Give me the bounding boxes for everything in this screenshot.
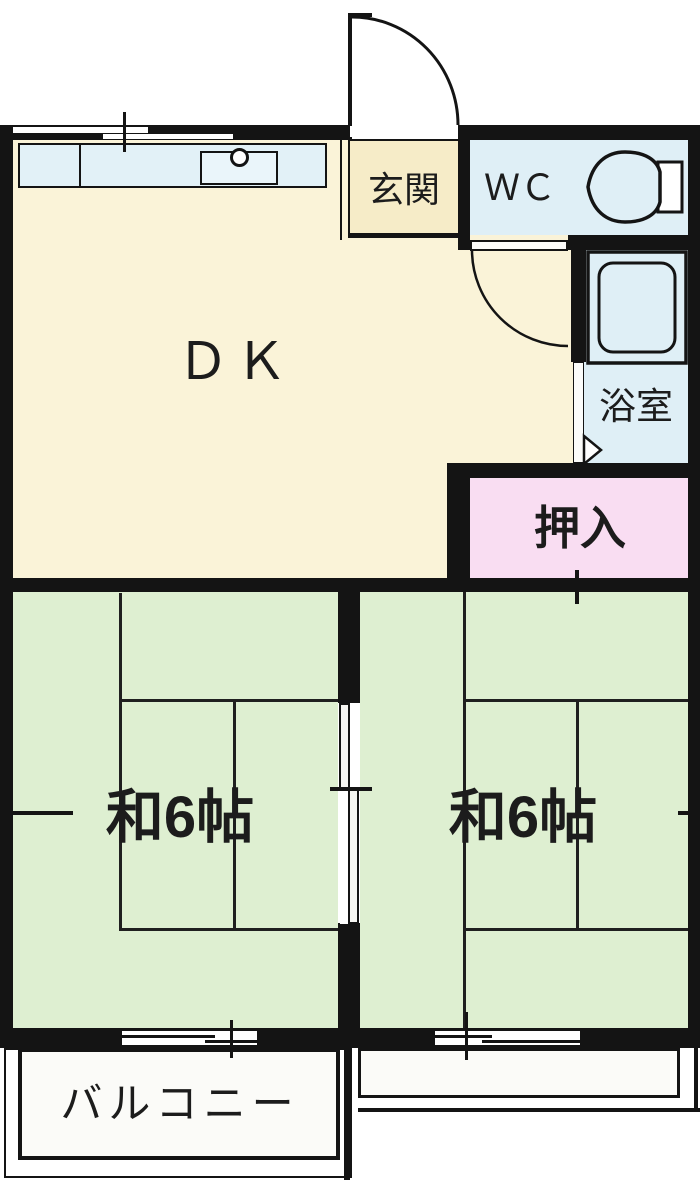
bath-door-arrow-icon: [584, 436, 601, 464]
label-balcony: バルコニー: [35, 1078, 325, 1130]
label-closet: 押入: [490, 500, 670, 556]
label-genkan: 玄関: [350, 164, 458, 216]
bathtub-icon: [588, 252, 686, 363]
label-bathroom: 浴室: [588, 382, 684, 430]
label-dk: ＤＫ: [140, 330, 330, 394]
floor-plan: ＤＫ 玄関 ＷＣ 浴室 押入 和6帖 和6帖 バルコニー: [0, 0, 700, 1186]
toilet-icon: [588, 152, 682, 222]
label-wc: ＷＣ: [470, 164, 570, 212]
dk-door-arc-icon: [472, 251, 568, 346]
label-tatami-right: 和6帖: [388, 782, 658, 854]
entry-door-arc-icon: [350, 15, 458, 125]
label-tatami-left: 和6帖: [45, 782, 315, 854]
